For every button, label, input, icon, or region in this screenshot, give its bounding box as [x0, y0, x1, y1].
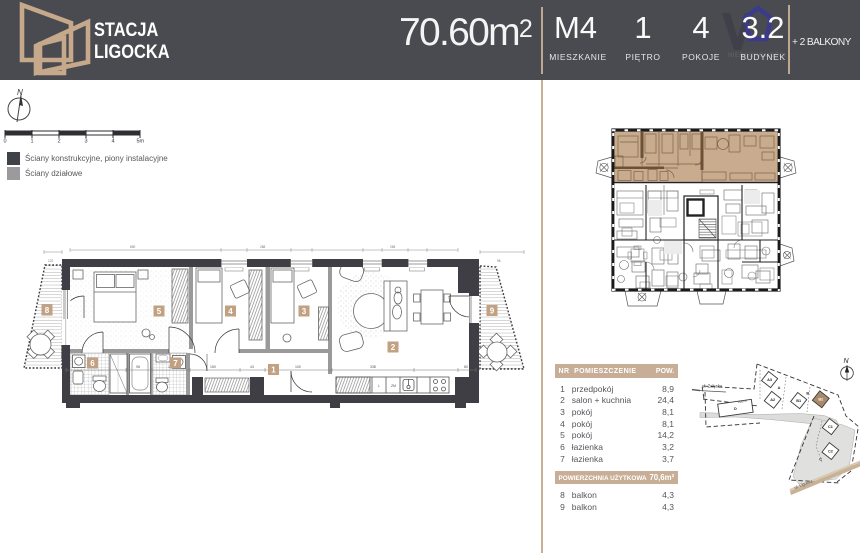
svg-text:C2: C2 [828, 450, 833, 454]
svg-text:B: B [806, 392, 809, 396]
svg-text:ul. Załęska: ul. Załęska [702, 384, 723, 389]
svg-text:C: C [819, 457, 822, 461]
svg-text:A2: A2 [770, 398, 775, 402]
svg-text:A: A [778, 386, 781, 390]
svg-text:C1: C1 [828, 425, 833, 429]
svg-text:B2: B2 [818, 398, 823, 402]
svg-text:B1: B1 [796, 399, 801, 403]
svg-text:N: N [844, 358, 850, 365]
svg-text:A3: A3 [767, 378, 772, 382]
svg-text:D: D [734, 407, 737, 411]
